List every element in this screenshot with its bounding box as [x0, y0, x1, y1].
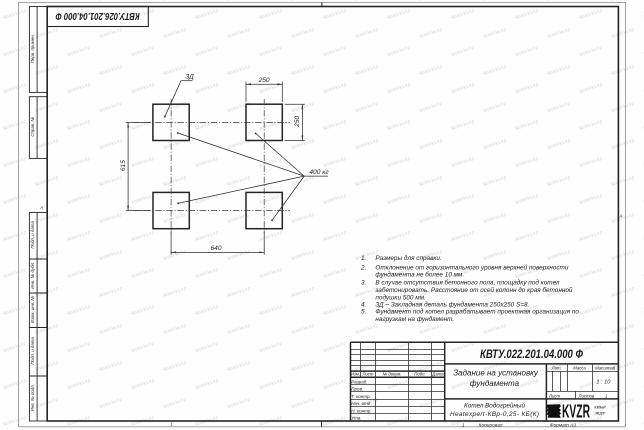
svg-text:Утв.: Утв. [351, 416, 361, 421]
svg-text:Пров.: Пров. [351, 387, 363, 392]
svg-text:А: А [618, 214, 622, 219]
svg-text:Перв. примен.: Перв. примен. [30, 34, 35, 63]
svg-text:Отклонение от горизонтального: Отклонение от горизонтального уровня вер… [375, 263, 568, 271]
svg-text:Подп. и дата: Подп. и дата [30, 221, 35, 249]
svg-text:№ докум.: № докум. [383, 372, 402, 377]
svg-text:Heatexpert-КВр-0,25- КБ(К): Heatexpert-КВр-0,25- КБ(К) [450, 411, 539, 418]
svg-text:Лит.: Лит. [551, 365, 562, 370]
svg-text:Задание на установку: Задание на установку [453, 368, 539, 377]
svg-text:КОТЕЛЬНЫЙ: КОТЕЛЬНЫЙ [594, 405, 606, 409]
svg-text:Изм.: Изм. [351, 372, 360, 377]
svg-text:ЗД – Закладная деталь фундамен: ЗД – Закладная деталь фундамента 250х250… [375, 300, 529, 308]
svg-text:Формат А3: Формат А3 [550, 422, 577, 428]
svg-text:фундамента не более 10 мм.: фундамента не более 10 мм. [375, 271, 464, 279]
svg-text:Справ. №: Справ. № [30, 116, 35, 136]
svg-text:Размеры для справки.: Размеры для справки. [375, 254, 441, 262]
svg-text:Фундамент под котел разрабатыв: Фундамент под котел разрабатывает проект… [375, 308, 579, 316]
svg-text:Т. контр.: Т. контр. [351, 394, 370, 399]
svg-text:1.: 1. [361, 255, 366, 262]
svg-text:Подп. и дата: Подп. и дата [30, 337, 35, 365]
svg-text:Лист: Лист [361, 372, 373, 377]
svg-text:Разраб.: Разраб. [351, 379, 367, 384]
svg-text:Котел Водогрейный: Котел Водогрейный [464, 401, 525, 409]
svg-text:Лист: Лист [548, 394, 560, 399]
svg-text:Масштаб: Масштаб [595, 365, 616, 370]
svg-text:250: 250 [258, 77, 270, 84]
svg-text:1: 1 [170, 421, 173, 427]
svg-text:ЗД: ЗД [185, 73, 194, 80]
svg-text:Масса: Масса [573, 365, 586, 370]
svg-text:Взам. инв. №: Взам. инв. № [30, 296, 35, 323]
svg-text:В случае отсутствия бетонного: В случае отсутствия бетонного пола, площ… [375, 279, 560, 287]
svg-text:Инв. № дубл.: Инв. № дубл. [30, 262, 35, 289]
svg-text:5.: 5. [361, 309, 366, 316]
svg-text:Копировал: Копировал [479, 422, 503, 428]
svg-text:КВТУ.026.201.04.000 Ф: КВТУ.026.201.04.000 Ф [56, 10, 140, 21]
svg-text:640: 640 [210, 245, 221, 252]
svg-text:фундамента: фундамента [470, 379, 520, 388]
svg-text:3.: 3. [361, 280, 366, 287]
svg-text:2.: 2. [360, 264, 366, 271]
svg-text:нагрузкам на фундамент.: нагрузкам на фундамент. [375, 315, 454, 323]
svg-text:А: А [39, 205, 43, 210]
svg-text:ЗАВОД РЗР: ЗАВОД РЗР [595, 411, 607, 415]
svg-text:Листов: Листов [578, 394, 595, 399]
svg-text:400 кг: 400 кг [309, 169, 329, 176]
svg-text:Н. контр.: Н. контр. [351, 408, 371, 413]
svg-text:1 : 10: 1 : 10 [596, 380, 611, 386]
svg-text:250: 250 [294, 115, 301, 127]
svg-text:KVZR: KVZR [562, 402, 590, 422]
svg-text:подушки 500 мм.: подушки 500 мм. [375, 293, 425, 301]
svg-text:Инв. № подл.: Инв. № подл. [30, 384, 35, 411]
svg-text:Подп.: Подп. [414, 372, 425, 377]
svg-text:забетонировать. Расстояние от: забетонировать. Расстояние от осей колон… [374, 286, 573, 294]
svg-text:КВТУ.022.201.04.000 Ф: КВТУ.022.201.04.000 Ф [480, 347, 583, 361]
svg-text:4.: 4. [361, 301, 366, 308]
svg-text:Дата: Дата [431, 372, 444, 377]
svg-text:1: 1 [462, 422, 465, 428]
svg-text:Нач. отд: Нач. отд [351, 401, 370, 406]
svg-text:615: 615 [120, 160, 127, 171]
